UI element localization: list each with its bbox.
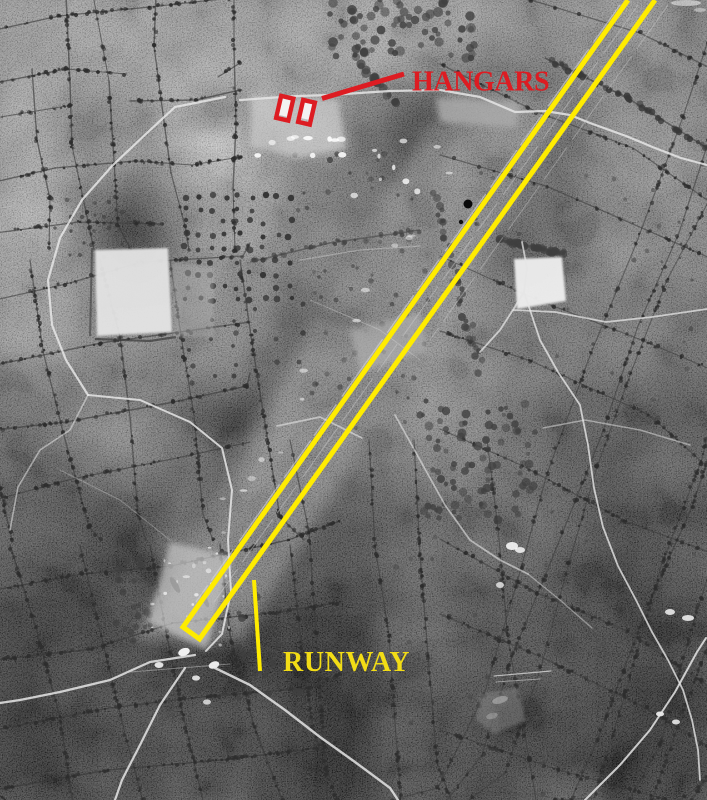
svg-text:HANGARS: HANGARS xyxy=(412,67,549,98)
svg-text:RUNWAY: RUNWAY xyxy=(283,647,410,678)
